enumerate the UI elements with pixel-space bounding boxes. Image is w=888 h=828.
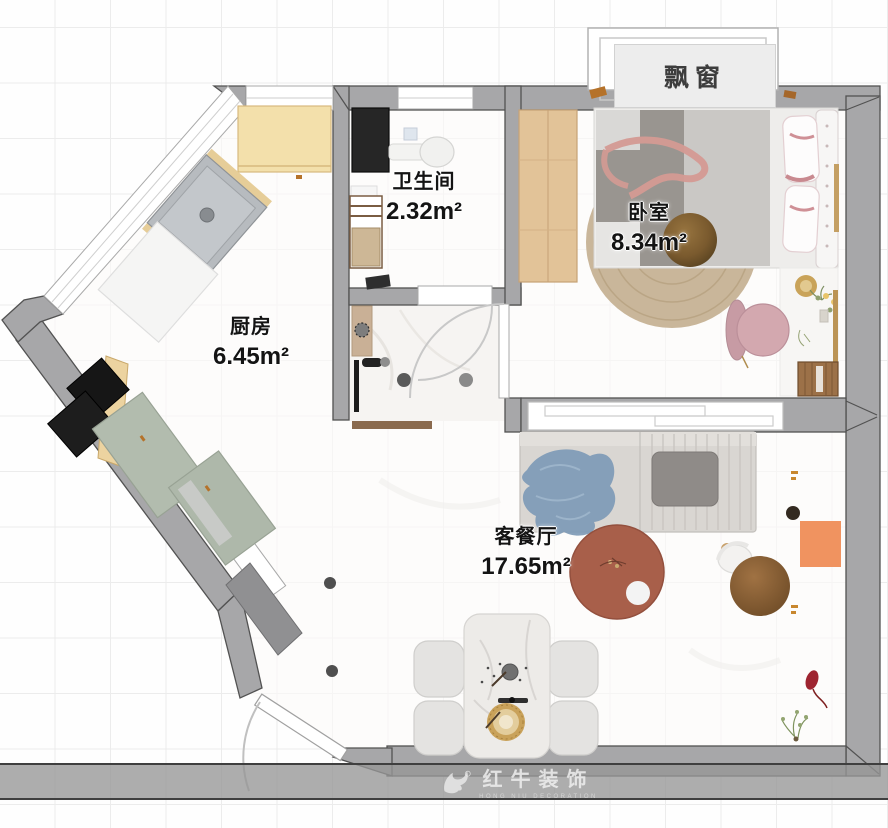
room-area-living-dining: 17.65m² xyxy=(481,555,570,579)
watermark-logo: 红牛装饰 HONG NIU DECORATION xyxy=(442,763,598,800)
sofa xyxy=(520,432,756,536)
wardrobe xyxy=(519,110,577,282)
watermark-bar: 红牛装饰 HONG NIU DECORATION xyxy=(0,763,888,800)
right-wall xyxy=(846,96,880,776)
watermark-brand-cn: 红牛装饰 xyxy=(482,763,594,792)
watermark-brand-en: HONG NIU DECORATION xyxy=(479,794,598,800)
kitchen-bath-wall xyxy=(333,86,349,420)
room-area-kitchen: 6.45m² xyxy=(213,345,289,369)
floor-plan-canvas: 飘窗 卫生间 2.32m² 卧室 8.34m² 厨房 6.45m² 客餐厅 17… xyxy=(0,0,888,828)
ottoman xyxy=(730,556,790,616)
room-label-bathroom: 卫生间 2.32m² xyxy=(386,172,462,224)
coffee-table xyxy=(570,525,664,619)
room-label-kitchen: 厨房 6.45m² xyxy=(213,317,289,369)
threshold xyxy=(352,421,432,429)
room-name-kitchen: 厨房 xyxy=(213,317,289,337)
room-name-bedroom: 卧室 xyxy=(611,203,687,223)
hongniu-bull-icon xyxy=(442,768,472,796)
room-area-bedroom: 8.34m² xyxy=(611,231,687,255)
bay-window-label: 飘窗 xyxy=(614,44,776,108)
room-label-bedroom: 卧室 8.34m² xyxy=(611,203,687,255)
kitchen-wall-cabinet xyxy=(238,106,331,179)
washing-machine xyxy=(352,108,389,172)
room-name-bathroom: 卫生间 xyxy=(386,172,462,192)
bedroom-west-wall-lower xyxy=(505,398,521,432)
room-label-living-dining: 客餐厅 17.65m² xyxy=(481,527,570,579)
room-area-bathroom: 2.32m² xyxy=(386,200,462,224)
bathroom-window xyxy=(398,87,473,109)
wall-radiator xyxy=(834,164,839,232)
sliding-door xyxy=(528,402,783,430)
room-name-living-dining: 客餐厅 xyxy=(481,527,570,547)
bedside-cabinet xyxy=(798,362,838,396)
